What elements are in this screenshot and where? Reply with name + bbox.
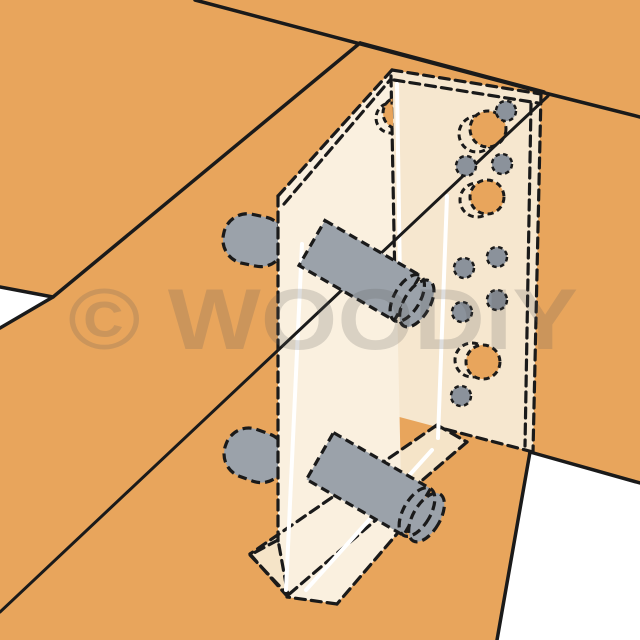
screw-dot-2 — [456, 156, 476, 176]
screw-dot-3 — [492, 154, 512, 174]
illustration-canvas: © WOODIY — [0, 0, 640, 640]
screw-dot-8 — [451, 386, 471, 406]
plate-hole-2 — [470, 180, 504, 214]
watermark-text: © WOODIY — [68, 272, 578, 368]
screw-dot-1 — [496, 101, 516, 121]
bracket-illustration: © WOODIY — [0, 0, 640, 640]
screw-dot-4 — [487, 247, 507, 267]
